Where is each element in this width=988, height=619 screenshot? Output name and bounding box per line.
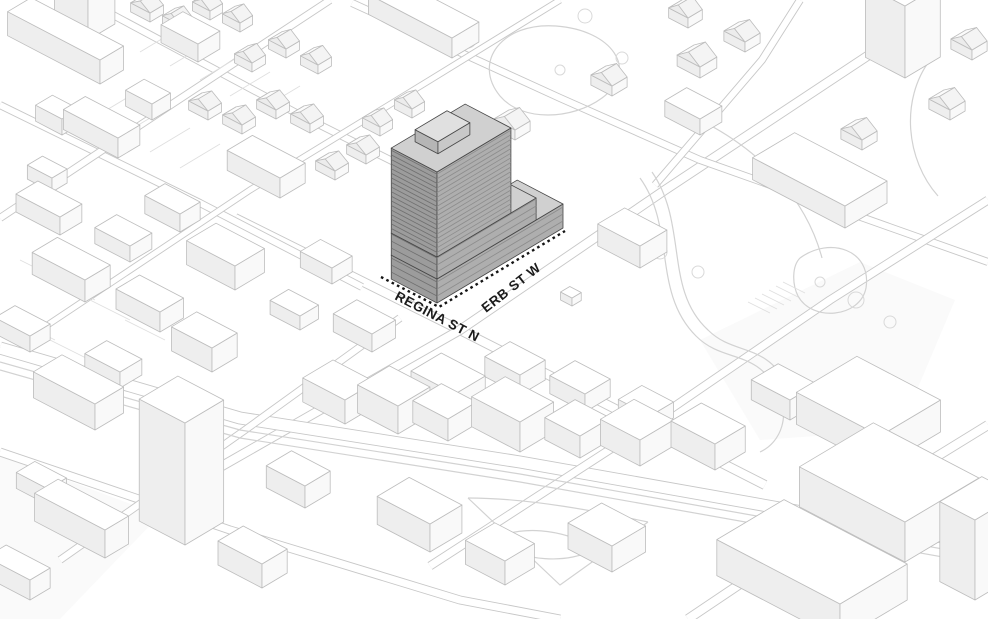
- context-house: [677, 42, 717, 78]
- context-house: [841, 117, 877, 150]
- lot-line: [50, 340, 90, 360]
- context-house: [131, 0, 164, 22]
- context-house: [222, 4, 252, 32]
- context-house: [300, 45, 331, 74]
- tree-outline: [692, 266, 704, 278]
- lot-line: [150, 128, 190, 152]
- context-block: [266, 451, 330, 508]
- context-block: [865, 0, 940, 78]
- context-house: [724, 19, 760, 52]
- context-block: [32, 237, 110, 302]
- block-left-face: [865, 0, 905, 78]
- block-right-face: [905, 0, 940, 78]
- context-house: [929, 87, 965, 120]
- context-house: [951, 27, 987, 60]
- landscape-curve: [910, 60, 938, 196]
- context-house: [316, 151, 349, 180]
- block-left-face: [139, 399, 185, 545]
- context-block: [671, 403, 745, 470]
- context-block: [665, 88, 722, 135]
- context-block: [145, 184, 200, 232]
- context-block: [561, 287, 582, 306]
- block-right-face: [185, 400, 224, 545]
- context-house: [394, 90, 424, 118]
- context-house: [362, 108, 392, 136]
- context-house: [192, 0, 222, 20]
- site-context-3d-view: REGINA ST N ERB ST W: [0, 0, 988, 619]
- context-block: [16, 181, 82, 235]
- tree-outline: [555, 65, 565, 75]
- context-house: [189, 91, 222, 120]
- context-block: [95, 215, 152, 262]
- lot-line: [180, 144, 220, 168]
- context-block: [598, 208, 667, 268]
- context-block: [218, 526, 287, 588]
- context-block: [333, 300, 395, 352]
- context-block: [377, 477, 462, 552]
- context-house: [669, 0, 703, 28]
- context-block: [227, 135, 305, 198]
- context-block: [116, 275, 184, 332]
- context-block: [172, 312, 238, 372]
- context-block: [270, 289, 318, 330]
- tree-outline: [616, 52, 628, 64]
- tree-outline: [578, 9, 592, 23]
- context-block: [139, 376, 223, 545]
- axonometric-city-model: REGINA ST N ERB ST W: [0, 0, 988, 619]
- context-house: [223, 105, 256, 134]
- context-block: [368, 0, 478, 58]
- context-house: [591, 63, 627, 96]
- context-block: [568, 503, 646, 572]
